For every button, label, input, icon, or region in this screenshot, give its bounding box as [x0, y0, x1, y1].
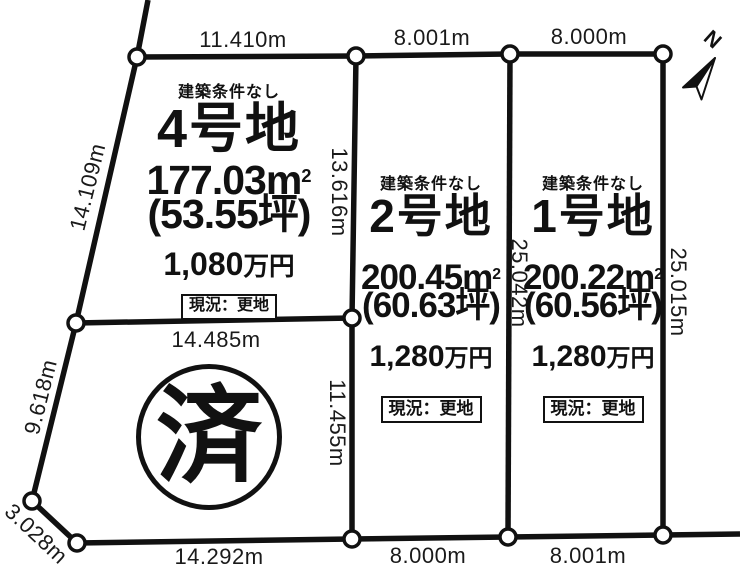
lot2-name: 2号地	[361, 195, 501, 239]
lot2-tsubo: (60.63坪)	[361, 292, 501, 321]
vertex-marker	[502, 46, 518, 62]
dimension-mid-upper: 13.616m	[326, 147, 352, 236]
lot2-status-badge: 現況：更地	[381, 396, 482, 423]
lot1-area-sup: 2	[654, 265, 663, 282]
lot2-price-value: 1,280	[369, 340, 444, 373]
lot2-info: 建築条件なし 2号地 200.45m2 (60.63坪) 1,280万円 現況：…	[361, 170, 501, 423]
dimension-bottom-lot2: 8.000m	[390, 543, 466, 569]
dimension-bottom-lot1: 8.001m	[550, 543, 626, 569]
dimension-east-side: 25.015m	[665, 247, 691, 336]
lot2-price-unit: 万円	[445, 345, 493, 372]
dimension-divider-sold: 14.485m	[171, 327, 260, 353]
lot4-price-unit: 万円	[243, 253, 294, 281]
vertex-marker	[68, 315, 84, 331]
lot1-price-unit: 万円	[607, 345, 655, 372]
lot1-tsubo: (60.56坪)	[523, 292, 663, 321]
lot4-status-badge: 現況：更地	[181, 294, 277, 319]
lot1-price: 1,280万円	[523, 342, 663, 372]
vertex-marker	[348, 48, 364, 64]
lot1-status-badge: 現況：更地	[543, 396, 644, 423]
dimension-top-lot4: 11.410m	[199, 27, 286, 53]
lot4-lot2-divider-line	[352, 56, 356, 539]
lot2-area-sup: 2	[492, 265, 501, 282]
dimension-top-lot2: 8.001m	[394, 25, 470, 51]
vertex-marker	[344, 531, 360, 547]
lot1-info: 建築条件なし 1号地 200.22m2 (60.56坪) 1,280万円 現況：…	[523, 170, 663, 423]
vertex-marker	[129, 49, 145, 65]
west-boundary-line	[32, 0, 148, 543]
lot1-name: 1号地	[523, 195, 663, 239]
vertex-marker	[500, 529, 516, 545]
lot4-price: 1,080万円	[138, 248, 320, 281]
vertex-marker	[655, 527, 671, 543]
north-boundary-line	[137, 54, 663, 57]
land-plot-diagram: N 11.410m 8.001m 8.000m 14.109m 13.616m …	[0, 0, 740, 570]
dimension-bottom-sold: 14.292m	[174, 544, 263, 570]
lot4-area-sup: 2	[301, 165, 311, 186]
sold-stamp: 済	[136, 364, 282, 510]
vertex-marker	[655, 46, 671, 62]
lot2-price: 1,280万円	[361, 342, 501, 372]
lot4-price-value: 1,080	[163, 246, 243, 282]
dimension-mid-lower: 11.455m	[324, 379, 350, 466]
south-boundary-line	[77, 534, 740, 543]
lot4-tsubo: (53.55坪)	[138, 198, 320, 232]
lot1-price-value: 1,280	[531, 340, 606, 373]
lot4-name: 4号地	[138, 104, 320, 155]
dimension-top-lot1: 8.000m	[551, 24, 627, 50]
north-arrow-icon	[683, 58, 715, 100]
lot4-info: 建築条件なし 4号地 177.03m2 (53.55坪) 1,080万円 現況：…	[138, 78, 320, 320]
vertex-marker	[344, 310, 360, 326]
